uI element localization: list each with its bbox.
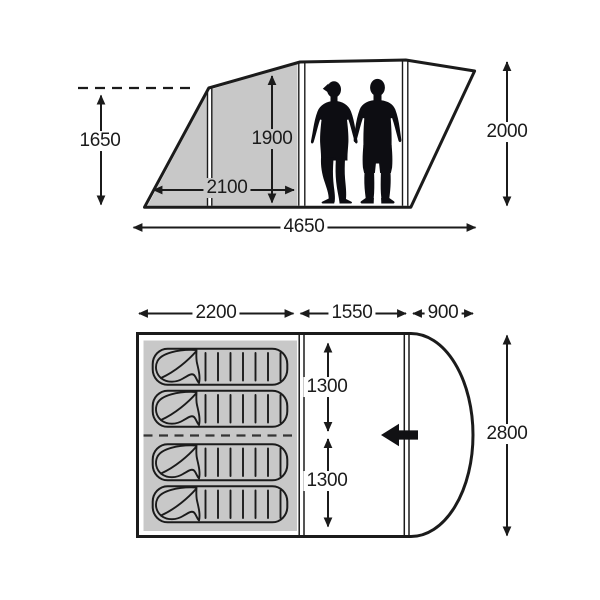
diagram-linework <box>0 0 600 600</box>
bedroom-width-upper-label: 1300 <box>303 377 350 397</box>
rear-pole <box>403 60 408 205</box>
overall-width-label: 2800 <box>483 424 530 444</box>
floor-plan-view <box>138 314 508 537</box>
front-section-depth-label: 2100 <box>203 178 250 198</box>
middle-pole <box>298 63 305 206</box>
bedroom-width-lower-label: 1300 <box>303 471 350 491</box>
bedroom-length-label: 2200 <box>192 303 239 323</box>
front-height-label: 1650 <box>76 131 123 151</box>
inner-height-label: 1900 <box>248 129 295 149</box>
woman-silhouette <box>311 81 358 203</box>
living-length-label: 1550 <box>328 303 375 323</box>
front-length-label: 900 <box>425 303 462 323</box>
rear-height-label: 2000 <box>483 122 530 142</box>
overall-length-label: 4650 <box>280 217 327 237</box>
tent-dimensions-diagram: 1650 1900 2100 4650 2000 2200 1550 900 1… <box>0 0 600 600</box>
man-silhouette <box>354 79 402 204</box>
